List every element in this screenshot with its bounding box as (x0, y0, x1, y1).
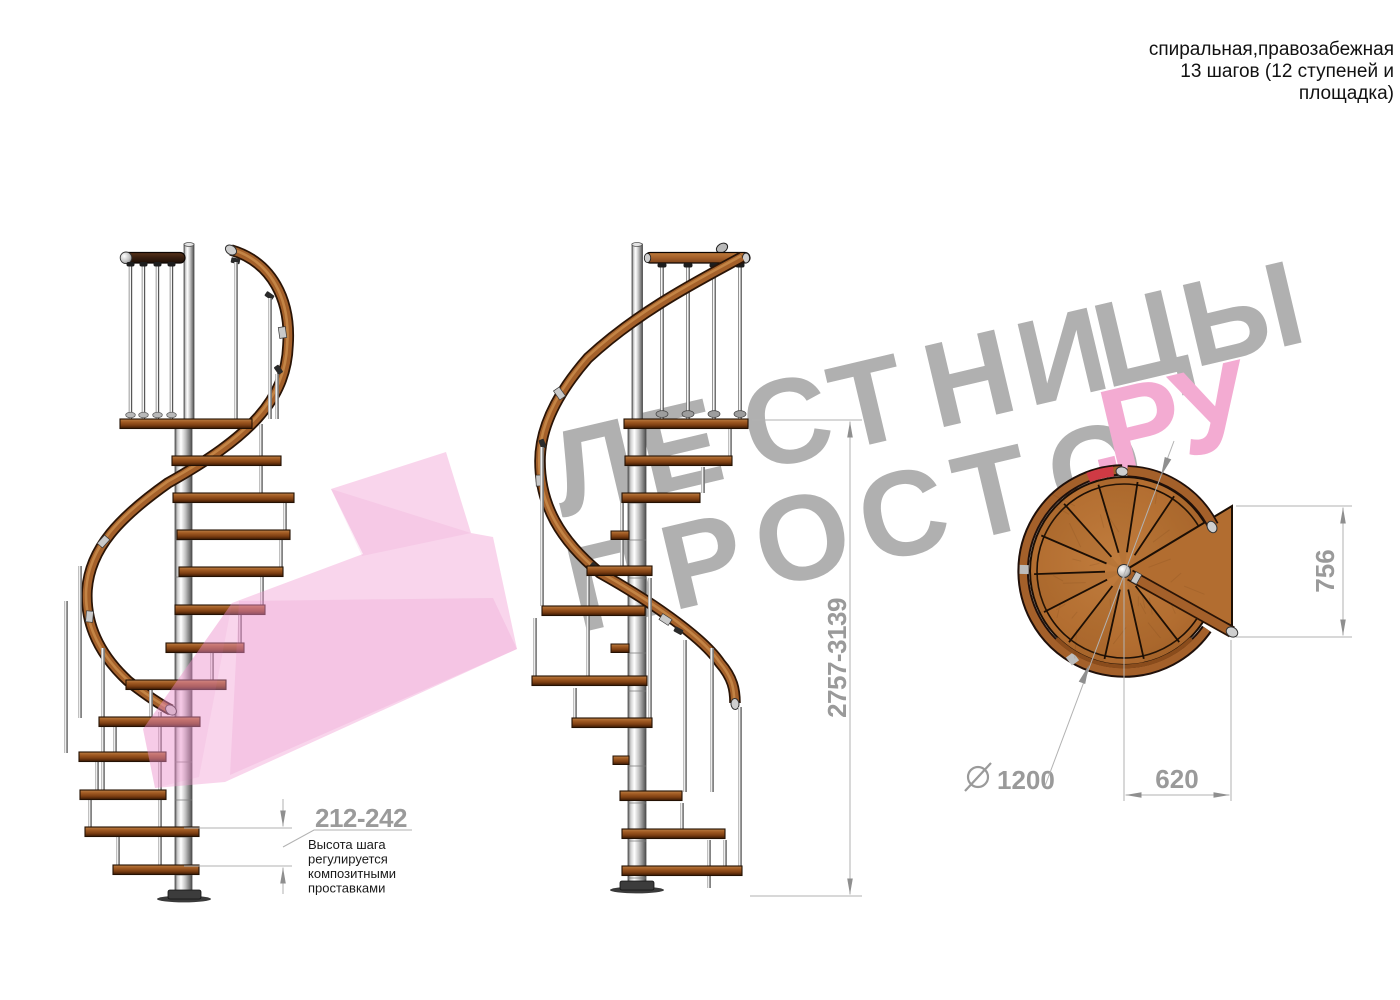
svg-text:спиральная,правозабежная: спиральная,правозабежная (1149, 39, 1394, 60)
svg-text:212-242: 212-242 (315, 803, 407, 833)
svg-text:Высота шага: Высота шага (308, 837, 386, 852)
svg-text:композитными: композитными (308, 866, 396, 881)
svg-text:регулируется: регулируется (308, 852, 388, 867)
svg-text:1200: 1200 (997, 765, 1055, 795)
svg-text:площадка): площадка) (1299, 83, 1394, 104)
svg-text:проставками: проставками (308, 881, 385, 896)
svg-text:13 шагов (12 ступеней и: 13 шагов (12 ступеней и (1180, 61, 1394, 82)
svg-text:2757-3139: 2757-3139 (822, 598, 852, 718)
svg-text:620: 620 (1155, 764, 1198, 794)
svg-text:756: 756 (1310, 549, 1340, 592)
